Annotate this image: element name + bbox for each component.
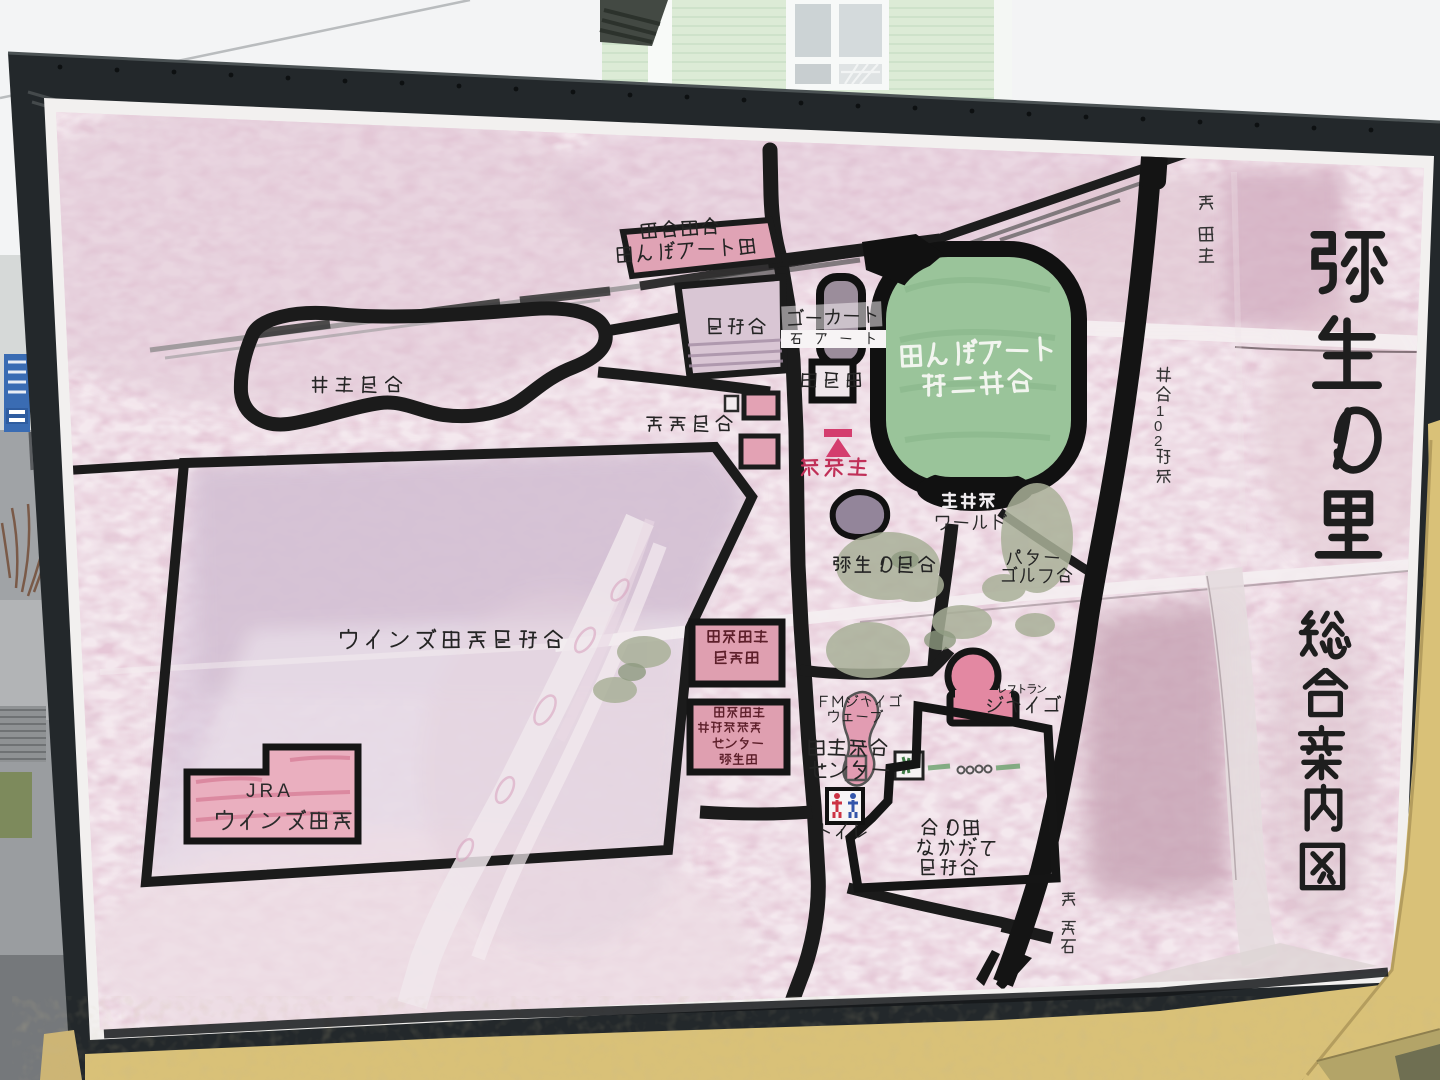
svg-text:2: 2 <box>1154 433 1162 450</box>
svg-text:JRA: JRA <box>246 781 294 802</box>
